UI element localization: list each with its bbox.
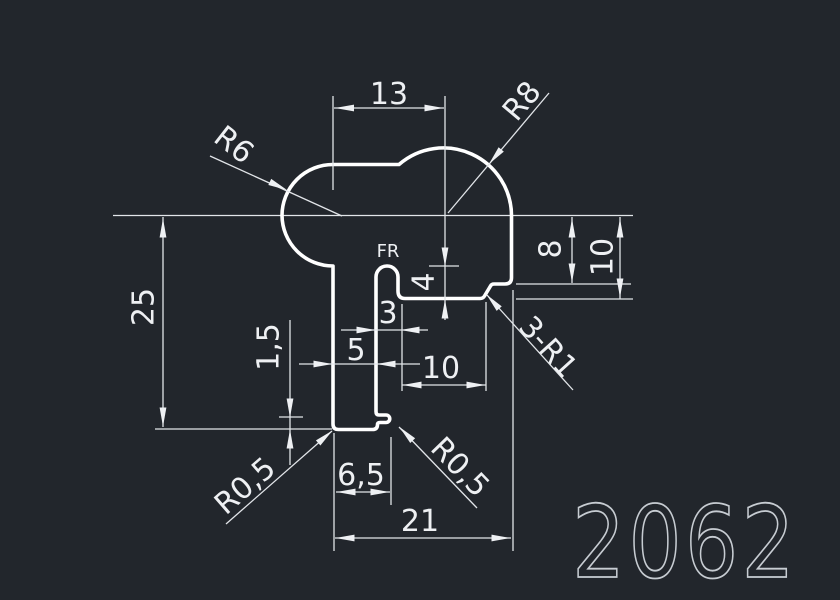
cad-drawing-canvas: 13 R8 R6 25 8 10 FR	[0, 0, 840, 600]
dim-6-5-label: 6,5	[337, 458, 385, 493]
dim-1-5-label: 1,5	[252, 323, 287, 371]
dim-10-bottom-label: 10	[422, 351, 460, 386]
r05-right-label: R0,5	[423, 430, 496, 504]
leader-r05-right: R0,5	[397, 425, 496, 508]
dim-25-label: 25	[127, 288, 162, 326]
r6-label: R6	[207, 119, 260, 171]
dim-5-label: 5	[346, 333, 365, 368]
dim-13-label: 13	[370, 77, 408, 112]
cad-drawing: 13 R8 R6 25 8 10 FR	[0, 0, 840, 600]
dim-4-label: 4	[407, 272, 442, 291]
dim-25: 25	[127, 217, 333, 429]
profile-outline	[282, 148, 512, 430]
r8-label: R8	[496, 75, 548, 128]
dim-3-label: 3	[378, 296, 397, 331]
leader-3r1: 3-R1	[484, 292, 584, 390]
leader-r6: R6	[207, 119, 342, 216]
leader-r8: R8	[448, 75, 549, 213]
dim-21-label: 21	[401, 504, 439, 539]
dim-10-right-label: 10	[586, 238, 621, 276]
dim-3: 3	[341, 296, 428, 333]
dim-6-5: 6,5	[334, 433, 391, 551]
fr-label: FR	[377, 241, 400, 262]
dim-8-label: 8	[534, 239, 569, 258]
part-number: 2062	[572, 484, 798, 600]
leader-r05-left: R0,5	[208, 428, 335, 524]
r05-left-label: R0,5	[208, 451, 283, 522]
dim-1-5: 1,5	[252, 320, 304, 465]
dim-4: 4	[407, 248, 460, 319]
fillet-3r1-label: 3-R1	[511, 310, 584, 385]
